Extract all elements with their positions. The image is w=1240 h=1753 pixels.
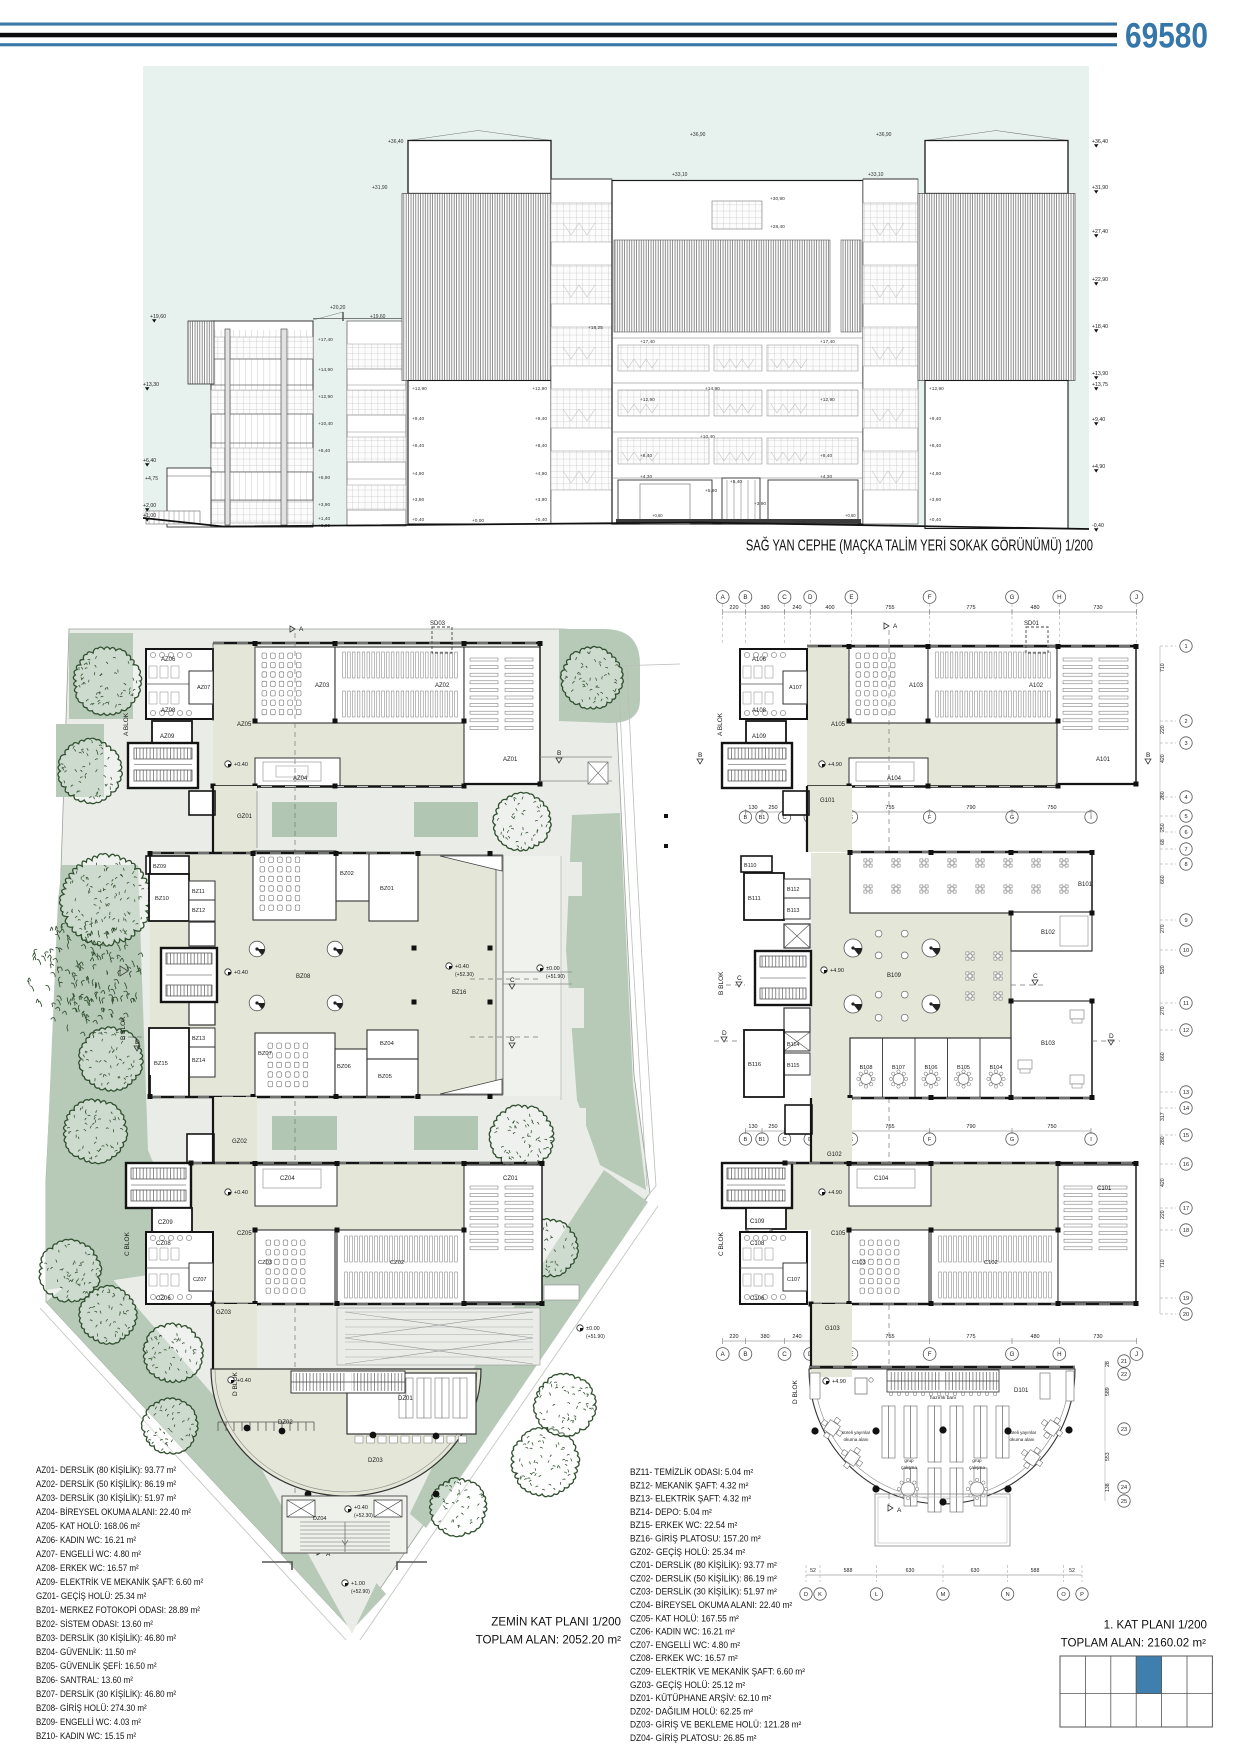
svg-text:+4,90: +4,90 [535, 471, 547, 477]
svg-text:AZ03: AZ03 [315, 683, 330, 689]
svg-text:B102: B102 [1041, 930, 1056, 936]
svg-text:1. KAT PLANI 1/200: 1. KAT PLANI 1/200 [1104, 1619, 1207, 1632]
svg-text:BZ15: BZ15 [154, 1061, 168, 1067]
svg-text:9: 9 [1184, 918, 1187, 924]
svg-text:CZ08: CZ08 [156, 1241, 171, 1247]
svg-text:D: D [804, 1592, 808, 1598]
svg-text:BZ04: BZ04 [380, 1041, 395, 1047]
svg-text:A107: A107 [789, 685, 802, 691]
svg-text:B BLOK: B BLOK [718, 971, 725, 995]
svg-text:AZ07- ENGELLİ WC: 4.80 m²: AZ07- ENGELLİ WC: 4.80 m² [36, 1549, 141, 1559]
svg-text:+4,90: +4,90 [929, 471, 941, 477]
svg-text:DZ02- DAĞILIM HOLÜ: 62.25 m²: DZ02- DAĞILIM HOLÜ: 62.25 m² [630, 1706, 753, 1716]
svg-text:A102: A102 [1029, 683, 1044, 689]
svg-text:B109: B109 [887, 973, 902, 979]
svg-text:16: 16 [1183, 1162, 1189, 1168]
svg-text:+3,90: +3,90 [929, 497, 941, 503]
svg-text:+22,90: +22,90 [1092, 277, 1108, 283]
svg-text:+4.90: +4.90 [828, 1190, 842, 1196]
svg-text:B: B [698, 752, 702, 759]
svg-text:+12,90: +12,90 [820, 397, 835, 403]
svg-text:+8,40: +8,40 [535, 443, 547, 449]
svg-text:J: J [1135, 594, 1138, 601]
svg-text:AZ01: AZ01 [503, 757, 518, 763]
svg-text:+12,90: +12,90 [929, 386, 944, 392]
svg-text:çalışma: çalışma [969, 1465, 985, 1470]
svg-text:A106: A106 [752, 657, 767, 663]
svg-text:süreli yayınlar: süreli yayınlar [842, 1430, 871, 1435]
svg-text:240: 240 [792, 605, 801, 611]
svg-text:+4,30: +4,30 [820, 474, 832, 480]
svg-text:AZ09: AZ09 [160, 734, 175, 740]
svg-text:28: 28 [1105, 1361, 1111, 1367]
svg-text:588: 588 [1031, 1568, 1040, 1574]
svg-text:+8,40: +8,40 [318, 448, 330, 454]
svg-text:BZ06: BZ06 [337, 1064, 351, 1070]
svg-text:DZ03- GİRİŞ VE BEKLEME HOLÜ: 1: DZ03- GİRİŞ VE BEKLEME HOLÜ: 121.28 m² [630, 1719, 801, 1729]
svg-text:+33,10: +33,10 [672, 172, 688, 178]
svg-text:(+52.30): (+52.30) [354, 1513, 373, 1519]
svg-text:BZ16- GİRİŞ PLATOSU: 157.20 m²: BZ16- GİRİŞ PLATOSU: 157.20 m² [630, 1533, 761, 1543]
svg-text:BZ07: BZ07 [258, 1051, 272, 1057]
svg-text:480: 480 [1030, 605, 1039, 611]
svg-text:BZ09: BZ09 [153, 864, 166, 870]
svg-text:D: D [135, 1039, 140, 1046]
svg-text:ZEMİN KAT PLANI 1/200: ZEMİN KAT PLANI 1/200 [491, 1616, 621, 1629]
svg-text:280: 280 [1160, 1136, 1166, 1145]
svg-text:+0,60: +0,60 [845, 513, 856, 518]
svg-text:C BLOK: C BLOK [124, 1231, 131, 1256]
svg-text:D101: D101 [1014, 1388, 1029, 1394]
svg-text:380: 380 [760, 1334, 769, 1340]
svg-text:B112: B112 [787, 887, 799, 893]
svg-text:B BLOK: B BLOK [120, 1016, 127, 1040]
svg-text:BZ05: BZ05 [378, 1074, 392, 1080]
svg-text:A101: A101 [1096, 757, 1111, 763]
svg-text:6: 6 [1184, 830, 1187, 836]
svg-text:(+51.90): (+51.90) [586, 1334, 605, 1340]
svg-text:C103: C103 [852, 1260, 866, 1266]
svg-text:19: 19 [1183, 1296, 1189, 1302]
svg-text:AZ06: AZ06 [161, 657, 176, 663]
svg-text:CZ02- DERSLİK (50 KİŞİLİK): 86: CZ02- DERSLİK (50 KİŞİLİK): 86.19 m² [630, 1573, 777, 1583]
svg-text:B110: B110 [744, 863, 756, 869]
svg-text:+10,40: +10,40 [318, 421, 333, 427]
svg-text:D: D [1109, 1033, 1114, 1040]
svg-text:CZ08- ERKEK WC: 16.57 m²: CZ08- ERKEK WC: 16.57 m² [630, 1653, 738, 1663]
svg-text:730: 730 [1093, 1334, 1102, 1340]
svg-text:C104: C104 [874, 1176, 889, 1182]
svg-text:+0.40: +0.40 [234, 970, 248, 976]
svg-text:710: 710 [1160, 1259, 1166, 1268]
svg-text:+28,40: +28,40 [770, 224, 785, 230]
svg-text:+0,60: +0,60 [652, 513, 663, 518]
svg-text:okuma alanı: okuma alanı [1009, 1437, 1034, 1442]
svg-text:380: 380 [760, 605, 769, 611]
svg-text:+8,40: +8,40 [929, 443, 941, 449]
svg-text:+17,40: +17,40 [318, 337, 333, 343]
svg-text:GZ03- GEÇİŞ HOLÜ: 25.12 m²: GZ03- GEÇİŞ HOLÜ: 25.12 m² [630, 1680, 745, 1690]
svg-text:11: 11 [1183, 1001, 1189, 1007]
svg-text:BZ01- MERKEZ FOTOKOPİ ODASI: 2: BZ01- MERKEZ FOTOKOPİ ODASI: 28.89 m² [36, 1605, 200, 1615]
svg-text:775: 775 [966, 1334, 975, 1340]
svg-text:G: G [1010, 815, 1014, 821]
svg-text:270: 270 [1160, 924, 1166, 933]
svg-text:SD03: SD03 [430, 621, 446, 627]
svg-text:G: G [1010, 594, 1015, 601]
svg-text:+4.90: +4.90 [830, 968, 844, 974]
svg-text:+2,00: +2,00 [143, 503, 156, 509]
svg-text:(+52.30): (+52.30) [455, 972, 474, 978]
svg-text:C: C [782, 1137, 786, 1143]
svg-text:3: 3 [1184, 741, 1187, 747]
svg-text:BZ04- GÜVENLİK: 11.50 m²: BZ04- GÜVENLİK: 11.50 m² [36, 1647, 136, 1657]
svg-text:C108: C108 [750, 1241, 765, 1247]
svg-text:17: 17 [1183, 1206, 1189, 1212]
svg-text:10: 10 [1183, 948, 1189, 954]
svg-text:DZ01: DZ01 [398, 1396, 413, 1402]
svg-text:588: 588 [844, 1568, 853, 1574]
svg-text:21: 21 [1121, 1359, 1127, 1365]
svg-text:BZ01: BZ01 [380, 886, 394, 892]
svg-text:24: 24 [1121, 1485, 1127, 1491]
svg-text:DZ02: DZ02 [278, 1420, 293, 1426]
svg-text:AZ04- BİREYSEL OKUMA ALANI: 22: AZ04- BİREYSEL OKUMA ALANI: 22.40 m² [36, 1507, 191, 1517]
svg-text:AZ08: AZ08 [161, 708, 176, 714]
svg-text:CZ03: CZ03 [258, 1260, 272, 1266]
svg-text:BZ06- SANTRAL: 13.60 m²: BZ06- SANTRAL: 13.60 m² [36, 1675, 133, 1685]
svg-text:okuma alanı: okuma alanı [843, 1437, 868, 1442]
svg-text:AZ07: AZ07 [197, 685, 210, 691]
svg-text:250: 250 [1160, 823, 1166, 832]
svg-text:BZ13- ELEKTRİK ŞAFT: 4.32 m²: BZ13- ELEKTRİK ŞAFT: 4.32 m² [630, 1493, 751, 1503]
svg-text:B103: B103 [1041, 1041, 1056, 1047]
svg-text:5: 5 [1184, 814, 1187, 820]
svg-text:B106: B106 [924, 1065, 937, 1071]
svg-text:AZ01- DERSLİK (80 KİŞİLİK): 93: AZ01- DERSLİK (80 KİŞİLİK): 93.77 m² [36, 1465, 176, 1475]
svg-text:250: 250 [768, 805, 777, 811]
svg-text:BZ02: BZ02 [340, 871, 354, 877]
svg-text:F: F [928, 1137, 932, 1143]
svg-text:O: O [1061, 1592, 1066, 1598]
svg-text:+36,40: +36,40 [1092, 139, 1108, 145]
svg-text:CZ01: CZ01 [503, 1176, 518, 1182]
svg-text:250: 250 [768, 1124, 777, 1130]
svg-text:B113: B113 [787, 908, 799, 914]
svg-text:220: 220 [729, 605, 738, 611]
svg-text:BZ08: BZ08 [296, 974, 311, 980]
svg-text:+9,40: +9,40 [929, 416, 941, 422]
svg-text:CZ03- DERSLİK (30 KİŞİLİK): 51: CZ03- DERSLİK (30 KİŞİLİK): 51.97 m² [630, 1586, 777, 1596]
svg-text:589: 589 [1105, 1387, 1111, 1396]
svg-text:52: 52 [810, 1568, 816, 1574]
svg-text:+31,90: +31,90 [372, 185, 388, 191]
svg-text:DZ04- GİRİŞ PLATOSU: 26.85 m²: DZ04- GİRİŞ PLATOSU: 26.85 m² [630, 1733, 757, 1743]
svg-text:BZ10- KADIN WC: 15.15 m²: BZ10- KADIN WC: 15.15 m² [36, 1731, 136, 1741]
svg-text:H: H [1057, 1351, 1061, 1358]
svg-text:C: C [737, 975, 742, 982]
svg-text:+36,90: +36,90 [876, 132, 892, 138]
svg-text:750: 750 [1047, 1124, 1056, 1130]
svg-text:+18,40: +18,40 [1092, 324, 1108, 330]
svg-text:AZ05- KAT HOLÜ: 168.06 m²: AZ05- KAT HOLÜ: 168.06 m² [36, 1521, 140, 1531]
svg-text:130: 130 [748, 805, 757, 811]
svg-text:F: F [928, 1351, 932, 1358]
svg-text:755: 755 [885, 805, 894, 811]
svg-text:C: C [510, 977, 515, 984]
svg-text:12: 12 [1183, 1028, 1189, 1034]
svg-text:SD01: SD01 [1024, 621, 1040, 627]
svg-text:4: 4 [1184, 795, 1187, 801]
svg-text:25: 25 [1121, 1499, 1127, 1505]
svg-text:AZ05: AZ05 [237, 722, 252, 728]
svg-text:CZ05: CZ05 [237, 1231, 252, 1237]
svg-text:F: F [928, 815, 932, 821]
svg-text:420: 420 [1160, 754, 1166, 763]
svg-text:660: 660 [1160, 1052, 1166, 1061]
svg-text:CZ06- KADIN WC: 16.21 m²: CZ06- KADIN WC: 16.21 m² [630, 1626, 735, 1636]
svg-text:270: 270 [1160, 1006, 1166, 1015]
svg-text:+3,90: +3,90 [318, 502, 330, 508]
svg-text:CZ04- BİREYSEL OKUMA ALANI: 22: CZ04- BİREYSEL OKUMA ALANI: 22.40 m² [630, 1600, 792, 1610]
svg-text:B: B [1146, 752, 1150, 759]
svg-text:+13,30: +13,30 [143, 382, 159, 388]
svg-text:+0.40: +0.40 [354, 1505, 368, 1511]
svg-text:14: 14 [1183, 1106, 1189, 1112]
svg-text:TOPLAM ALAN: 2052.20 m²: TOPLAM ALAN: 2052.20 m² [476, 1634, 622, 1647]
svg-text:BZ12: BZ12 [192, 908, 205, 914]
svg-text:AZ02: AZ02 [435, 683, 450, 689]
svg-text:755: 755 [885, 1124, 894, 1130]
svg-text:+19,60: +19,60 [150, 314, 166, 320]
svg-text:+14,90: +14,90 [318, 367, 333, 373]
svg-text:+9,40: +9,40 [1092, 417, 1105, 423]
svg-text:C109: C109 [750, 1219, 765, 1225]
svg-text:G: G [1010, 1137, 1014, 1143]
svg-text:GZ02- GEÇİŞ HOLÜ: 25.34 m²: GZ02- GEÇİŞ HOLÜ: 25.34 m² [630, 1547, 745, 1557]
svg-text:+5,90: +5,90 [318, 475, 330, 481]
svg-text:C BLOK: C BLOK [718, 1231, 725, 1256]
svg-text:CZ02: CZ02 [390, 1260, 404, 1266]
svg-text:B1: B1 [759, 815, 766, 821]
svg-text:520: 520 [1160, 965, 1166, 974]
svg-text:240: 240 [792, 1334, 801, 1340]
svg-text:+8,40: +8,40 [640, 453, 652, 459]
svg-text:B115: B115 [787, 1063, 799, 1069]
svg-text:750: 750 [1047, 805, 1056, 811]
svg-text:DZ01- KÜTÜPHANE ARŞİV: 62.10 m: DZ01- KÜTÜPHANE ARŞİV: 62.10 m² [630, 1693, 771, 1703]
svg-text:C: C [782, 815, 786, 821]
svg-text:BZ08- GİRİŞ HOLÜ: 274.30 m²: BZ08- GİRİŞ HOLÜ: 274.30 m² [36, 1703, 147, 1713]
svg-text:+4,75: +4,75 [145, 476, 158, 482]
svg-text:+0.40: +0.40 [234, 1190, 248, 1196]
svg-text:630: 630 [906, 1568, 915, 1574]
svg-text:317: 317 [1160, 1112, 1166, 1121]
svg-text:CZ05- KAT HOLÜ: 167.55 m²: CZ05- KAT HOLÜ: 167.55 m² [630, 1613, 739, 1623]
svg-text:grup: grup [972, 1458, 982, 1463]
svg-text:GZ03: GZ03 [216, 1310, 232, 1316]
svg-text:G: G [1010, 1351, 1015, 1358]
svg-text:B104: B104 [989, 1065, 1002, 1071]
svg-text:GZ01- GEÇİŞ HOLÜ: 25.34 m²: GZ01- GEÇİŞ HOLÜ: 25.34 m² [36, 1591, 146, 1601]
svg-text:TOPLAM ALAN: 2160.02 m²: TOPLAM ALAN: 2160.02 m² [1061, 1637, 1207, 1650]
svg-text:+4.90: +4.90 [828, 762, 842, 768]
svg-text:BZ12- MEKANİK ŞAFT: 4.32 m²: BZ12- MEKANİK ŞAFT: 4.32 m² [630, 1480, 749, 1490]
svg-text:GZ02: GZ02 [232, 1139, 248, 1145]
svg-text:D: D [722, 1030, 727, 1037]
svg-text:DZ03: DZ03 [368, 1458, 383, 1464]
svg-text:22: 22 [1121, 1372, 1127, 1378]
svg-text:+4,90: +4,90 [412, 471, 424, 477]
svg-text:553: 553 [1105, 1452, 1111, 1461]
svg-text:AZ02- DERSLİK (50 KİŞİLİK): 86: AZ02- DERSLİK (50 KİŞİLİK): 86.19 m² [36, 1479, 176, 1489]
svg-text:L: L [875, 1592, 878, 1598]
svg-text:G102: G102 [827, 1152, 842, 1158]
svg-text:BZ11- TEMİZLİK ODASI: 5.04 m²: BZ11- TEMİZLİK ODASI: 5.04 m² [630, 1467, 753, 1477]
svg-text:138: 138 [1105, 1483, 1111, 1492]
svg-text:+9,40: +9,40 [412, 416, 424, 422]
svg-text:+3,90: +3,90 [412, 497, 424, 503]
svg-text:755: 755 [885, 1334, 894, 1340]
svg-text:B107: B107 [892, 1065, 905, 1071]
svg-text:CZ07- ENGELLİ WC: 4.80 m²: CZ07- ENGELLİ WC: 4.80 m² [630, 1640, 740, 1650]
svg-text:220: 220 [1160, 1210, 1166, 1219]
svg-text:C105: C105 [831, 1231, 846, 1237]
svg-text:A: A [299, 626, 304, 633]
svg-text:+0,00: +0,00 [472, 518, 484, 524]
svg-text:23: 23 [1121, 1427, 1127, 1433]
svg-text:+5,90: +5,90 [705, 488, 717, 494]
svg-text:B: B [743, 1351, 747, 1358]
svg-text:CZ06: CZ06 [156, 1296, 171, 1302]
svg-text:18: 18 [1183, 1228, 1189, 1234]
svg-text:7: 7 [1184, 847, 1187, 853]
svg-text:C: C [1033, 973, 1038, 980]
svg-text:B116: B116 [748, 1062, 761, 1068]
svg-text:K: K [818, 1592, 822, 1598]
svg-text:+4,90: +4,90 [1092, 464, 1105, 470]
svg-text:M: M [941, 1592, 946, 1598]
svg-text:755: 755 [885, 605, 894, 611]
svg-text:BZ07- DERSLİK (30 KİŞİLİK): 46: BZ07- DERSLİK (30 KİŞİLİK): 46.80 m² [36, 1689, 176, 1699]
svg-text:A105: A105 [831, 722, 846, 728]
svg-text:BZ14: BZ14 [192, 1058, 205, 1064]
svg-text:+1,40: +1,40 [318, 516, 330, 522]
svg-text:+3,90: +3,90 [754, 501, 766, 507]
svg-text:15: 15 [1183, 1133, 1189, 1139]
svg-text:+8,40: +8,40 [820, 453, 832, 459]
svg-text:B108: B108 [859, 1065, 872, 1071]
svg-text:A: A [897, 1507, 902, 1514]
svg-text:B: B [557, 750, 561, 757]
svg-text:20: 20 [1183, 1312, 1189, 1318]
svg-text:GZ01: GZ01 [237, 814, 253, 820]
svg-text:A108: A108 [752, 708, 767, 714]
svg-text:280: 280 [1160, 791, 1166, 800]
svg-text:B114: B114 [787, 1042, 799, 1048]
svg-text:F: F [928, 594, 932, 601]
svg-text:(+52.90): (+52.90) [351, 1589, 370, 1595]
svg-text:130: 130 [748, 1124, 757, 1130]
svg-text:+8,40: +8,40 [412, 443, 424, 449]
svg-text:C: C [782, 594, 787, 601]
svg-text:G101: G101 [820, 798, 835, 804]
svg-text:+31,90: +31,90 [1092, 185, 1108, 191]
svg-text:G103: G103 [825, 1326, 840, 1332]
svg-text:N: N [1006, 1592, 1010, 1598]
svg-text:68: 68 [1160, 839, 1166, 845]
svg-text:C: C [782, 1351, 787, 1358]
svg-text:DZ04: DZ04 [313, 1516, 326, 1522]
svg-text:A109: A109 [752, 734, 767, 740]
svg-text:+1.00: +1.00 [351, 1581, 365, 1587]
svg-text:BZ10: BZ10 [155, 896, 169, 902]
svg-text:C101: C101 [1097, 1186, 1112, 1192]
svg-text:BZ02- SİSTEM ODASI: 13.60 m²: BZ02- SİSTEM ODASI: 13.60 m² [36, 1619, 153, 1629]
svg-text:E: E [849, 594, 853, 601]
svg-text:220: 220 [1160, 725, 1166, 734]
svg-text:220: 220 [729, 1334, 738, 1340]
svg-text:+19,60: +19,60 [370, 314, 386, 320]
svg-text:grup: grup [904, 1458, 914, 1463]
svg-text:+33,10: +33,10 [868, 172, 884, 178]
svg-text:730: 730 [1093, 605, 1102, 611]
svg-text:(+51.90): (+51.90) [546, 974, 565, 980]
svg-text:790: 790 [966, 805, 975, 811]
svg-text:+17,40: +17,40 [820, 339, 835, 345]
svg-text:790: 790 [966, 1124, 975, 1130]
svg-text:+13,75: +13,75 [1092, 382, 1108, 388]
svg-text:B: B [743, 594, 747, 601]
svg-text:AZ03- DERSLİK (30 KİŞİLİK): 51: AZ03- DERSLİK (30 KİŞİLİK): 51.97 m² [36, 1493, 176, 1503]
svg-text:+6,40: +6,40 [143, 458, 156, 464]
svg-text:AZ09- ELEKTRİK VE MEKANİK ŞAFT: AZ09- ELEKTRİK VE MEKANİK ŞAFT: 6.60 m² [36, 1577, 203, 1587]
svg-text:hazırlık banı: hazırlık banı [930, 1395, 956, 1401]
svg-text:+27,40: +27,40 [1092, 229, 1108, 235]
svg-text:P: P [1080, 1592, 1084, 1598]
svg-text:A BLOK: A BLOK [123, 712, 130, 736]
svg-text:BZ16: BZ16 [452, 990, 467, 996]
svg-text:+0.40: +0.40 [455, 964, 469, 970]
svg-text:+0,40: +0,40 [929, 517, 941, 523]
svg-text:BZ05- GÜVENLİK ŞEFİ: 16.50 m²: BZ05- GÜVENLİK ŞEFİ: 16.50 m² [36, 1661, 157, 1671]
svg-text:480: 480 [1030, 1334, 1039, 1340]
svg-text:süreli yayınlar: süreli yayınlar [1008, 1430, 1037, 1435]
svg-text:B: B [744, 815, 748, 821]
svg-text:CZ01- DERSLİK (80 KİŞİLİK): 93: CZ01- DERSLİK (80 KİŞİLİK): 93.77 m² [630, 1560, 777, 1570]
svg-text:D BLOK: D BLOK [792, 1379, 799, 1404]
svg-text:B: B [744, 1137, 748, 1143]
svg-text:±0.00: ±0.00 [546, 966, 560, 972]
svg-text:52: 52 [1069, 1568, 1075, 1574]
svg-text:+12,90: +12,90 [532, 386, 547, 392]
svg-text:+13,90: +13,90 [1092, 371, 1108, 377]
svg-text:+4.90: +4.90 [832, 1379, 846, 1385]
svg-text:B101: B101 [1078, 882, 1093, 888]
svg-text:C102: C102 [984, 1260, 998, 1266]
svg-text:+9,40: +9,40 [535, 416, 547, 422]
svg-text:+0,40: +0,40 [535, 517, 547, 523]
svg-text:+36,40: +36,40 [388, 139, 404, 145]
svg-text:+18,25: +18,25 [588, 325, 603, 331]
svg-text:-0,40: -0,40 [1092, 523, 1104, 529]
svg-text:+20,20: +20,20 [330, 305, 346, 311]
svg-text:710: 710 [1160, 663, 1166, 672]
svg-text:8: 8 [1184, 862, 1187, 868]
svg-text:420: 420 [1160, 1178, 1166, 1187]
svg-text:±0.00: ±0.00 [586, 1326, 600, 1332]
svg-text:630: 630 [971, 1568, 980, 1574]
